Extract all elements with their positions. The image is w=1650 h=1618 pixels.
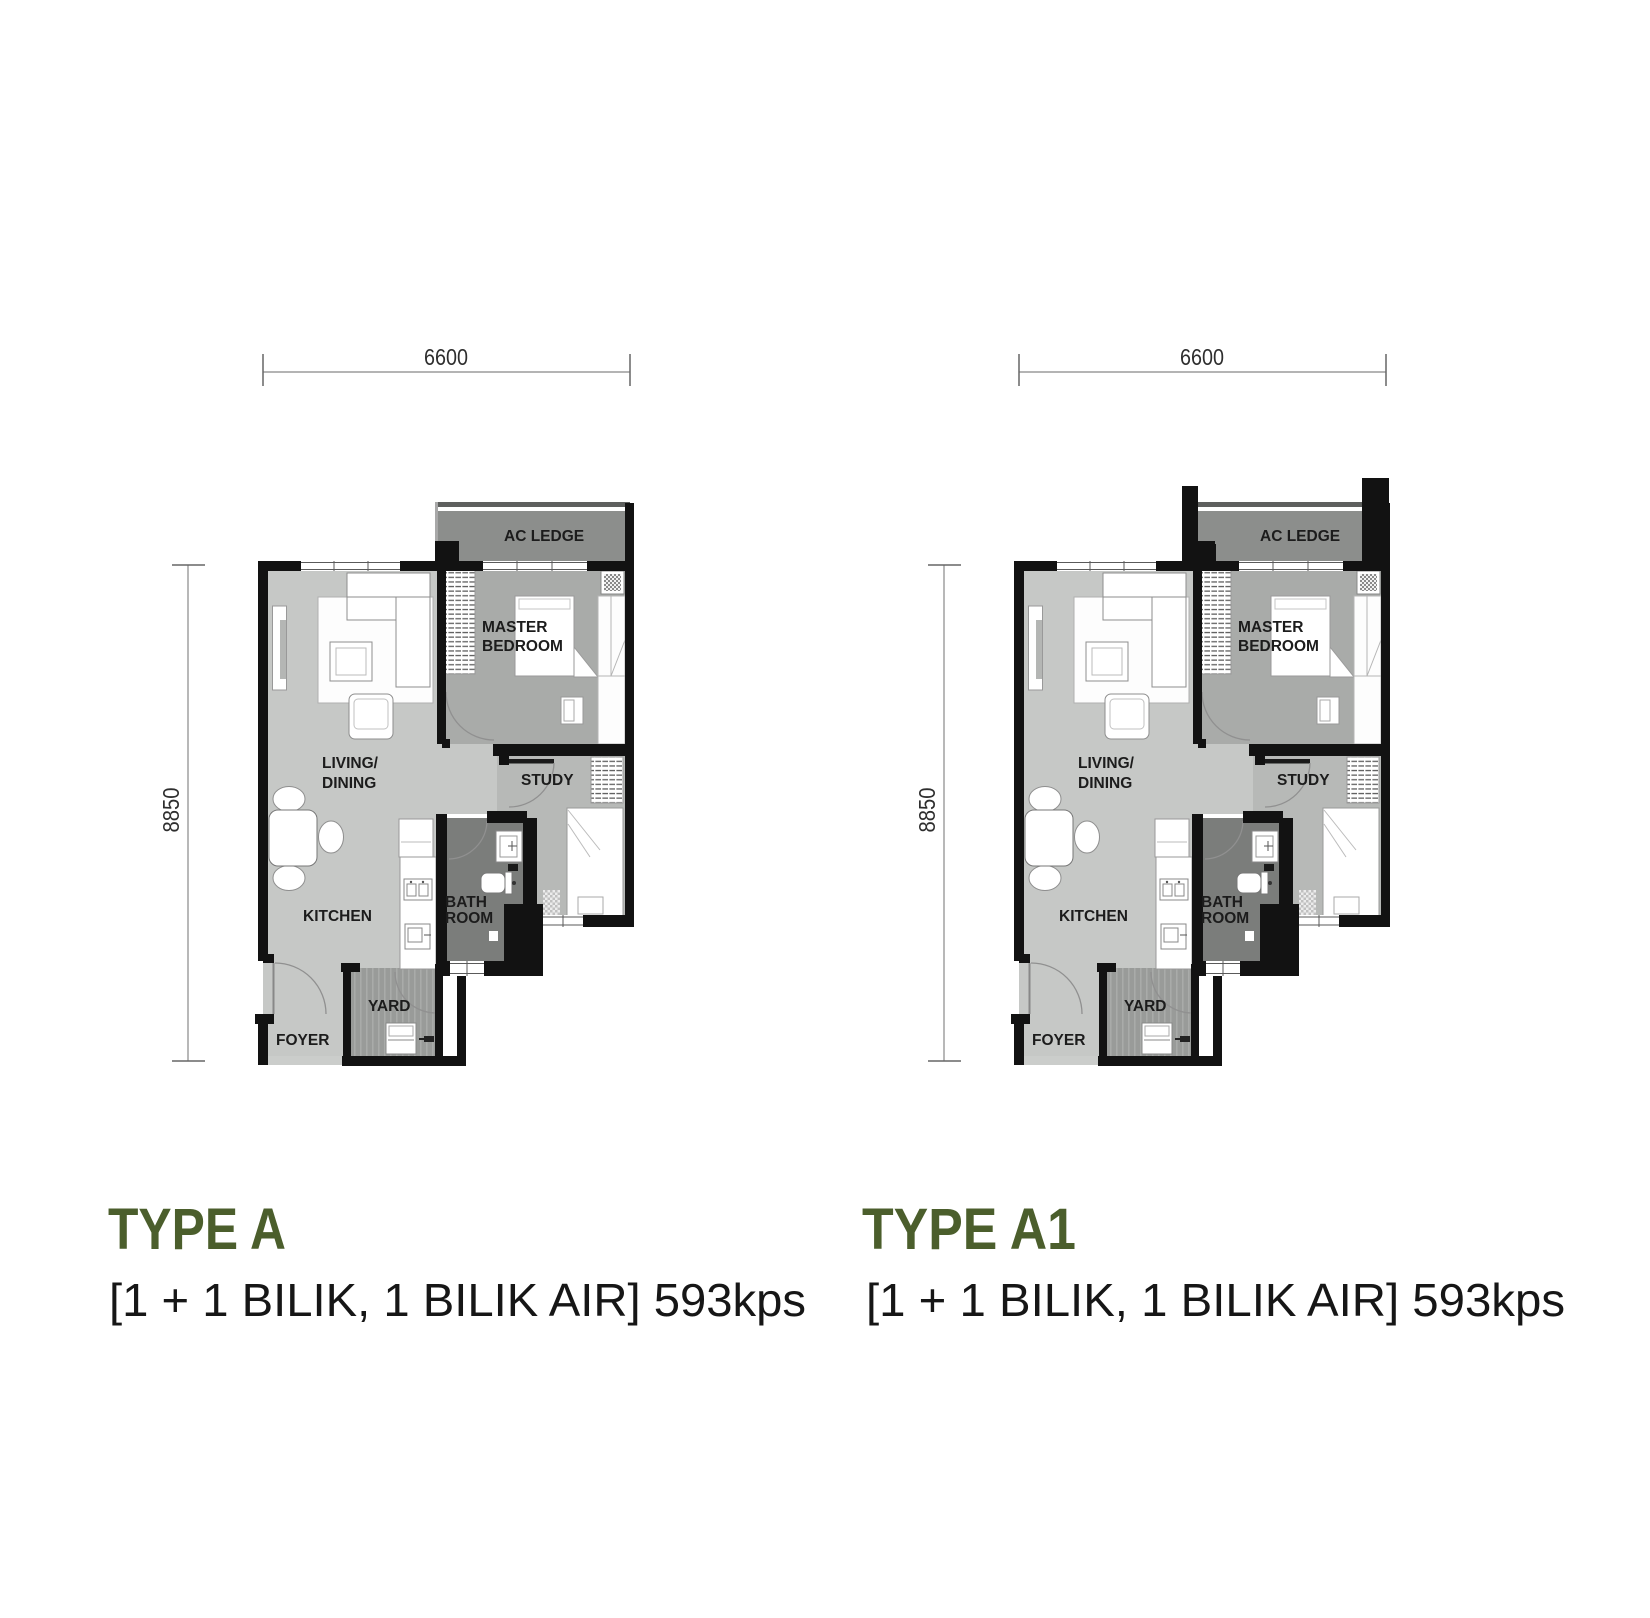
svg-text:[1 + 1 BILIK, 1 BILIK AIR] 593: [1 + 1 BILIK, 1 BILIK AIR] 593kps	[866, 1274, 1565, 1326]
svg-text:TYPE A: TYPE A	[108, 1197, 286, 1262]
svg-text:TYPE A1: TYPE A1	[862, 1197, 1076, 1262]
svg-text:[1 + 1 BILIK, 1 BILIK AIR] 593: [1 + 1 BILIK, 1 BILIK AIR] 593kps	[109, 1274, 806, 1326]
